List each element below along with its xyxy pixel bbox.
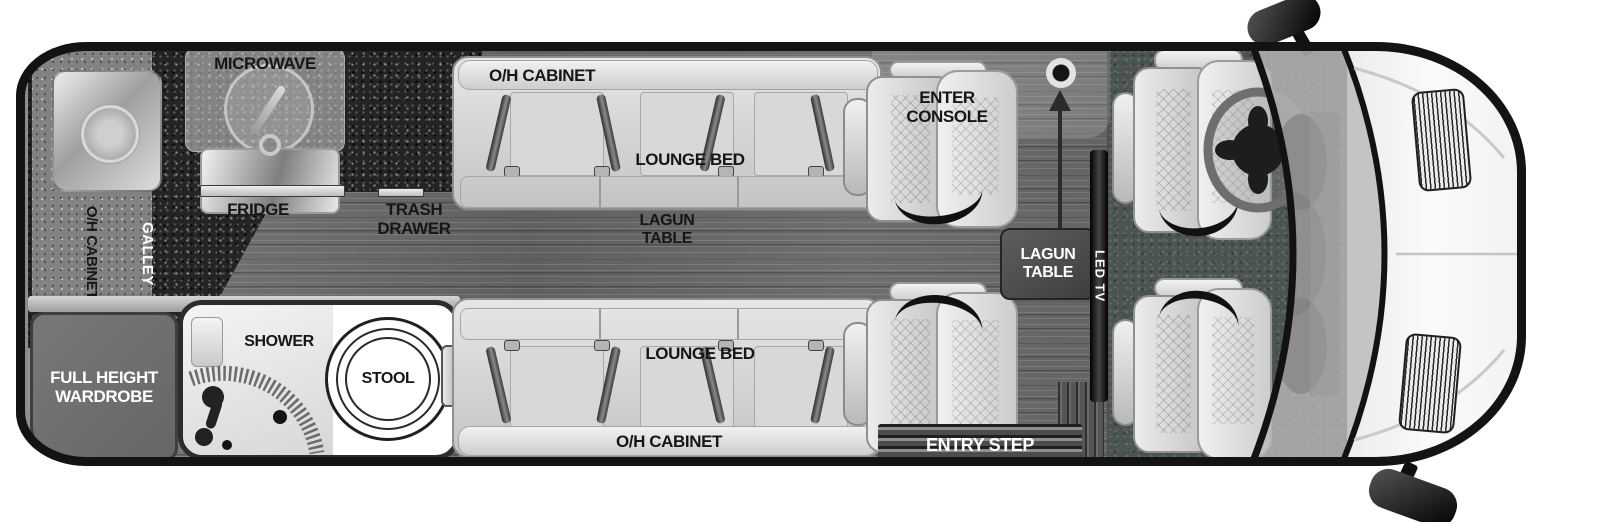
lounge-bed-top: O/H CABINET LOUNGE BED bbox=[452, 56, 882, 210]
fridge-handle bbox=[200, 185, 345, 197]
shower-label: SHOWER bbox=[227, 333, 331, 351]
seat-belt-icon bbox=[485, 94, 511, 172]
belt-buckle-icon bbox=[504, 340, 520, 351]
seat-back-panel bbox=[510, 92, 604, 176]
trash-drawer-handle bbox=[378, 188, 424, 197]
hood-vent-icon bbox=[1411, 88, 1473, 192]
wardrobe: FULL HEIGHT WARDROBE bbox=[30, 312, 178, 462]
oh-cabinet-top: O/H CABINET bbox=[458, 60, 878, 90]
sink-icon bbox=[52, 70, 162, 192]
seat-back-panel bbox=[510, 346, 604, 430]
microwave-label: MICROWAVE bbox=[190, 54, 340, 73]
toilet-bowl-icon: STOOL bbox=[345, 337, 431, 421]
fridge-label: FRIDGE bbox=[188, 200, 328, 219]
oh-cabinet-bottom: O/H CABINET bbox=[458, 426, 878, 456]
enter-console-label: ENTER CONSOLE bbox=[895, 88, 999, 126]
oh-cabinet-bottom-label: O/H CABINET bbox=[589, 432, 749, 451]
toilet-stool: STOOL bbox=[325, 317, 451, 441]
shower-curtain-icon bbox=[183, 339, 333, 455]
belt-buckle-icon bbox=[808, 340, 824, 351]
seat-belt-icon bbox=[485, 346, 511, 424]
entry-step: ENTRY STEP bbox=[878, 424, 1082, 462]
lagun-table: LAGUN TABLE bbox=[1000, 228, 1096, 300]
oh-cabinet-top-label: O/H CABINET bbox=[489, 66, 649, 85]
toilet-ring-icon: STOOL bbox=[336, 328, 440, 430]
seat-cushion bbox=[460, 176, 876, 208]
lagun-arrow-icon bbox=[1049, 90, 1071, 111]
trash-drawer-label: TRASH DRAWER bbox=[354, 200, 474, 238]
floorplan-canvas: O/H CABINET GALLEY MICROWAVE FRIDGE TRAS… bbox=[0, 0, 1600, 522]
seat-cushion bbox=[460, 308, 876, 340]
lagun-table-label: LAGUN TABLE bbox=[1021, 246, 1076, 282]
stool-label: STOOL bbox=[362, 370, 415, 388]
hood-vent-icon bbox=[1398, 333, 1462, 435]
lagun-mount-icon bbox=[1046, 58, 1076, 88]
sink-basin-icon bbox=[80, 104, 140, 164]
lounge-bed-bottom: O/H CABINET LOUNGE BED bbox=[452, 298, 882, 458]
burner-knob-icon bbox=[259, 134, 281, 156]
lounge-bed-top-label: LOUNGE BED bbox=[610, 150, 770, 169]
galley-label: GALLEY bbox=[138, 198, 155, 310]
belt-buckle-icon bbox=[594, 340, 610, 351]
van-body: O/H CABINET GALLEY MICROWAVE FRIDGE TRAS… bbox=[16, 42, 1526, 466]
entry-step-label: ENTRY STEP bbox=[878, 435, 1082, 455]
wardrobe-label: FULL HEIGHT WARDROBE bbox=[50, 368, 158, 406]
lounge-bed-bottom-label: LOUNGE BED bbox=[620, 344, 780, 363]
shower-room: SHOWER STOOL bbox=[178, 300, 460, 460]
lagun-table-floor-label: LAGUN TABLE bbox=[615, 212, 719, 248]
